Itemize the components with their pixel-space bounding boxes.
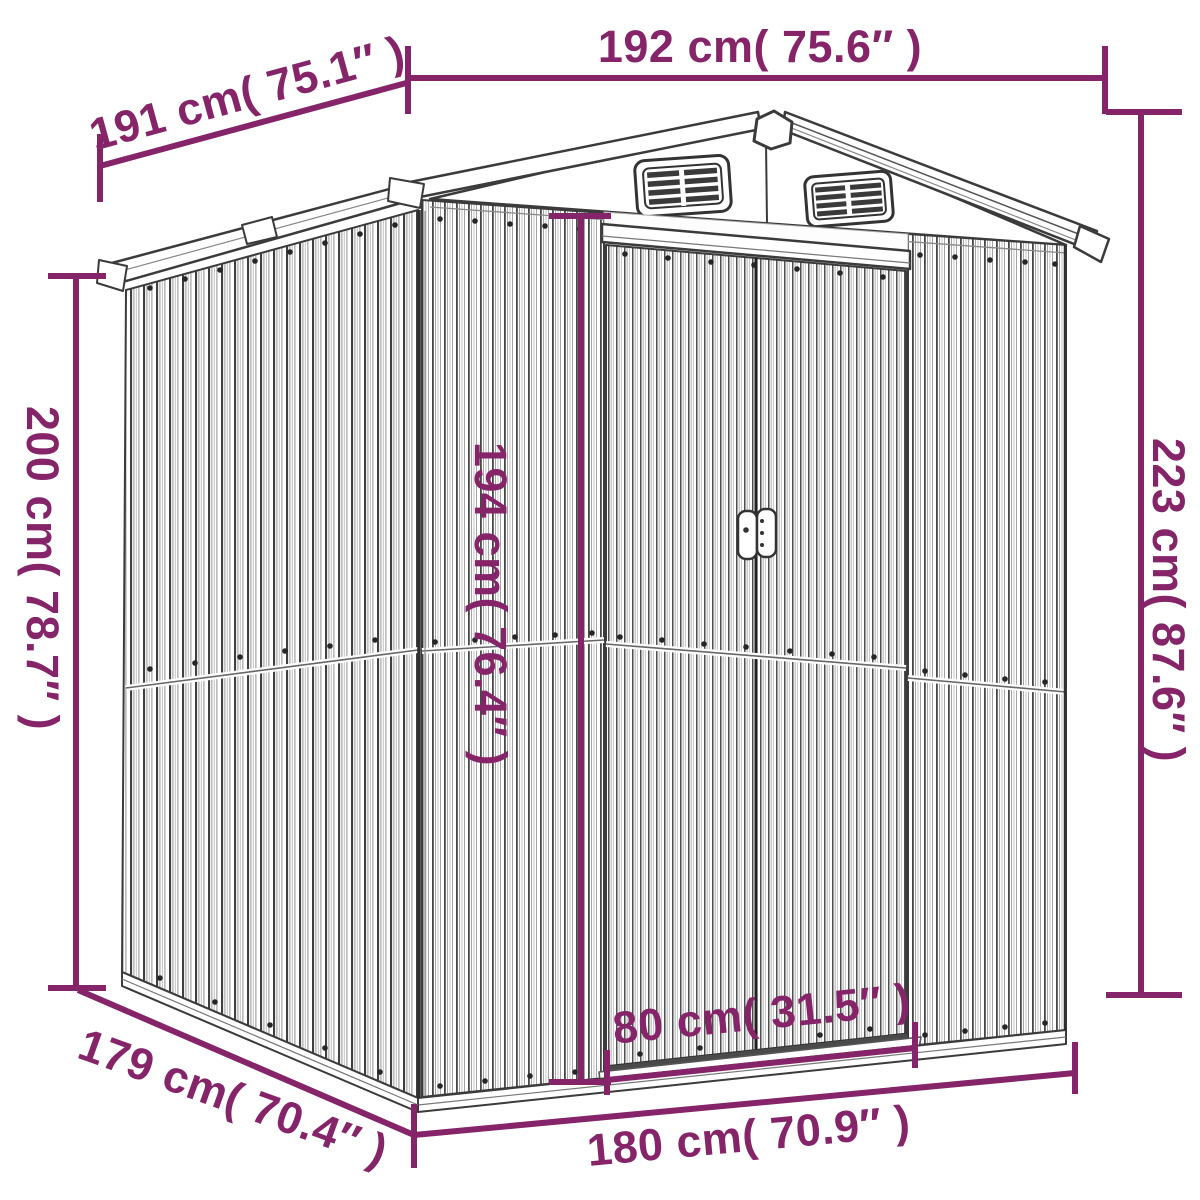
gable-center-seam xyxy=(766,142,767,224)
gable-vent-left xyxy=(634,155,732,217)
diagram-canvas: 192 cm( 75.6″ ) 191 cm( 75.1″ ) 200 cm( … xyxy=(0,0,1200,1200)
dim-label-left-height: 200 cm( 78.7″ ) xyxy=(17,406,68,730)
door-handle xyxy=(738,509,776,559)
sliding-door-left xyxy=(606,245,756,1070)
dim-label-top-width: 192 cm( 75.6″ ) xyxy=(598,21,922,72)
roof-tip-cap-right xyxy=(1074,226,1109,262)
front-panel-right xyxy=(908,234,1066,1046)
dim-label-door-height: 194 cm( 76.4″ ) xyxy=(465,442,516,766)
gable-vent-right xyxy=(804,171,894,228)
dim-label-base-width: 180 cm( 70.9″ ) xyxy=(585,1095,913,1176)
shed-dimension-diagram: 192 cm( 75.6″ ) 191 cm( 75.1″ ) 200 cm( … xyxy=(0,0,1200,1200)
shed-drawing xyxy=(97,111,1109,1112)
dim-label-right-height: 223 cm( 87.6″ ) xyxy=(1143,438,1194,762)
